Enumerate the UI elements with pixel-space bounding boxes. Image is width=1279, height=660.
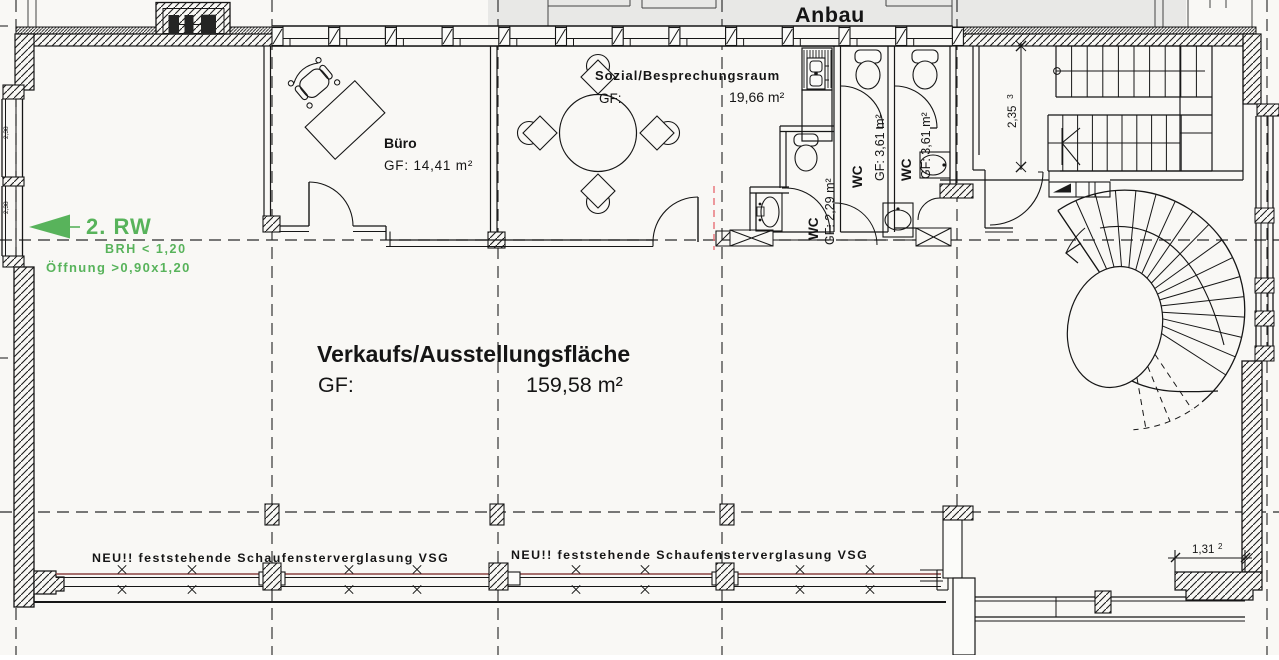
svg-text:BRH < 1,20: BRH < 1,20	[105, 242, 187, 256]
svg-text:2: 2	[1218, 542, 1223, 551]
svg-text:Öffnung >0,90x1,20: Öffnung >0,90x1,20	[46, 260, 191, 275]
svg-text:19,66 m²: 19,66 m²	[729, 89, 785, 105]
svg-text:WC: WC	[850, 165, 865, 188]
svg-text:2. RW: 2. RW	[86, 214, 152, 239]
svg-text:Büro: Büro	[384, 135, 417, 151]
svg-text:Anbau: Anbau	[795, 3, 865, 27]
svg-text:NEU!! feststehende Schaufenste: NEU!! feststehende Schaufensterverglasun…	[92, 551, 449, 565]
svg-text:3: 3	[1005, 94, 1015, 99]
svg-text:NEU!! feststehende Schaufenste: NEU!! feststehende Schaufensterverglasun…	[511, 548, 868, 562]
svg-text:Sozial/Besprechungsraum: Sozial/Besprechungsraum	[595, 68, 780, 83]
svg-text:GF: 3,61 m²: GF: 3,61 m²	[919, 112, 933, 179]
svg-text:Verkaufs/Ausstellungsfläche: Verkaufs/Ausstellungsfläche	[317, 341, 630, 367]
svg-text:WC: WC	[899, 158, 914, 181]
svg-text:2,35: 2,35	[1007, 106, 1019, 128]
svg-text:GF: 2,29 m²: GF: 2,29 m²	[823, 178, 837, 245]
svg-text:WC: WC	[806, 217, 821, 240]
svg-text:2,38: 2,38	[3, 201, 10, 214]
svg-text:GF: 3,61 m²: GF: 3,61 m²	[873, 114, 887, 181]
svg-text:2,38: 2,38	[3, 126, 10, 139]
svg-text:159,58 m²: 159,58 m²	[526, 373, 623, 397]
svg-text:GF:: GF:	[318, 373, 354, 397]
svg-text:1,31: 1,31	[1192, 544, 1214, 556]
svg-text:GF:: GF:	[599, 91, 622, 106]
svg-text:GF: 14,41 m²: GF: 14,41 m²	[384, 158, 473, 173]
